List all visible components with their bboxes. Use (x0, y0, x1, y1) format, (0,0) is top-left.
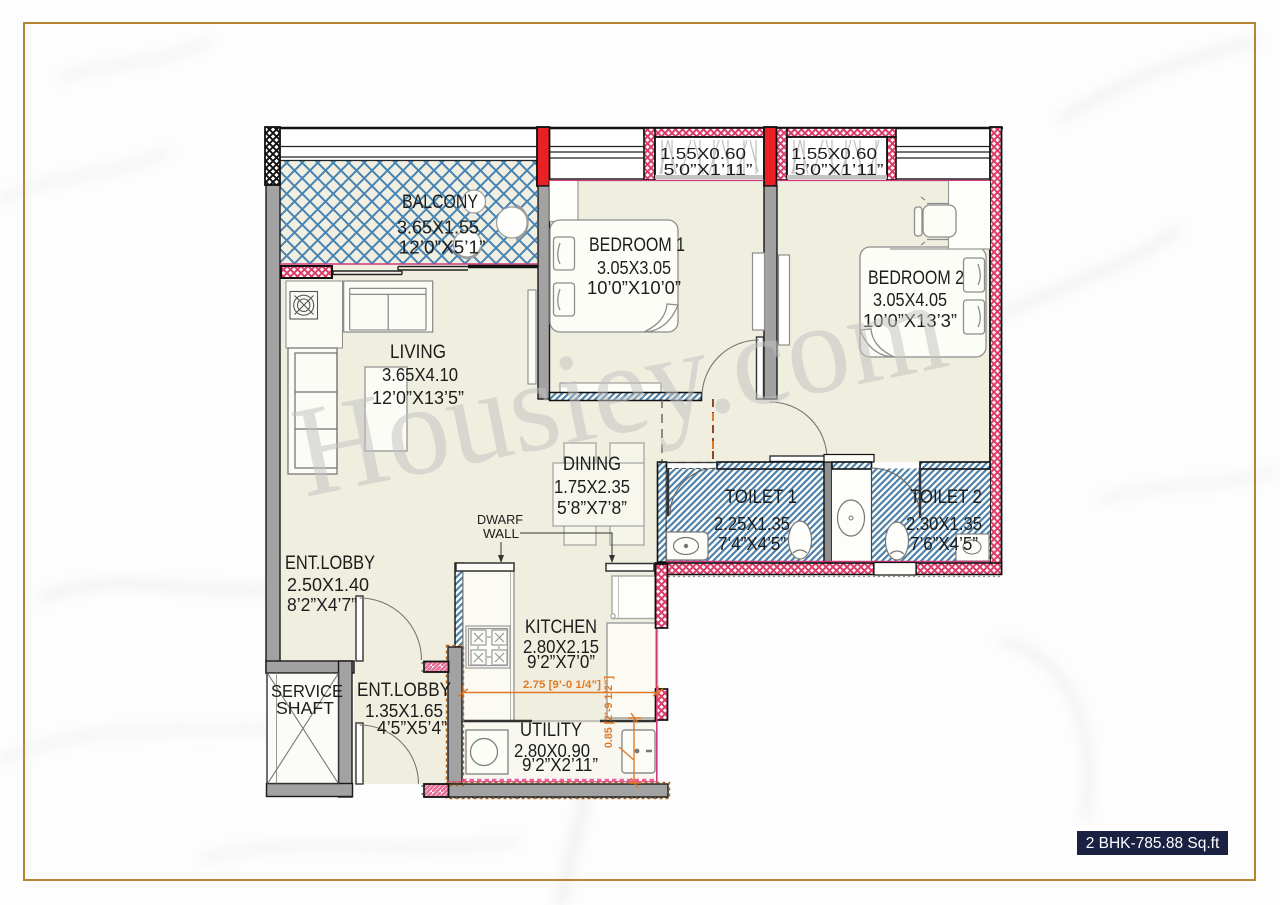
svg-text:9’2”X2’11”: 9’2”X2’11” (522, 754, 598, 775)
svg-text:5’0”X1’11”: 5’0”X1’11” (795, 162, 884, 179)
svg-text:2.25X1.35: 2.25X1.35 (714, 513, 790, 534)
svg-text:ENT.LOBBY: ENT.LOBBY (357, 680, 451, 701)
svg-text:2.50X1.40: 2.50X1.40 (287, 574, 369, 595)
svg-text:7’4”X4’5”: 7’4”X4’5” (718, 533, 786, 554)
svg-text:10’0”X10’0”: 10’0”X10’0” (587, 277, 681, 298)
svg-text:5’8”X7’8”: 5’8”X7’8” (557, 497, 627, 518)
svg-text:BALCONY: BALCONY (402, 192, 478, 213)
svg-text:1.55X0.60: 1.55X0.60 (660, 146, 746, 163)
svg-text:7’6”X4’5”: 7’6”X4’5” (910, 533, 978, 554)
svg-text:1.55X0.60: 1.55X0.60 (791, 146, 877, 163)
svg-text:DWARF: DWARF (477, 512, 523, 527)
svg-text:9’2”X7’0”: 9’2”X7’0” (527, 651, 595, 672)
svg-text:ENT.LOBBY: ENT.LOBBY (285, 553, 375, 574)
svg-text:UTILITY: UTILITY (520, 720, 582, 741)
svg-text:3.05X3.05: 3.05X3.05 (597, 257, 671, 278)
svg-text:8’2”X4’7”: 8’2”X4’7” (287, 594, 357, 615)
svg-text:2.30X1.35: 2.30X1.35 (906, 513, 982, 534)
svg-text:TOILET 2: TOILET 2 (910, 487, 982, 508)
svg-text:2 BHK-785.88 Sq.ft: 2 BHK-785.88 Sq.ft (1086, 835, 1220, 852)
svg-text:5’0”X1’11”: 5’0”X1’11” (664, 162, 753, 179)
svg-text:WALL: WALL (483, 526, 519, 541)
svg-text:BEDROOM 1: BEDROOM 1 (589, 235, 685, 256)
svg-text:SHAFT: SHAFT (276, 698, 334, 718)
svg-text:1.75X2.35: 1.75X2.35 (554, 476, 630, 497)
svg-text:4’5”X5’4”: 4’5”X5’4” (377, 717, 447, 738)
svg-text:2.75 [9’-0 1/4”]: 2.75 [9’-0 1/4”] (523, 679, 601, 691)
svg-text:0.85 [2’-9 1/2”]: 0.85 [2’-9 1/2”] (603, 676, 615, 748)
svg-text:KITCHEN: KITCHEN (525, 617, 597, 638)
svg-text:TOILET 1: TOILET 1 (725, 487, 797, 508)
svg-text:3.65X1.55: 3.65X1.55 (397, 217, 479, 238)
svg-text:12’0”X5’1”: 12’0”X5’1” (399, 237, 486, 258)
